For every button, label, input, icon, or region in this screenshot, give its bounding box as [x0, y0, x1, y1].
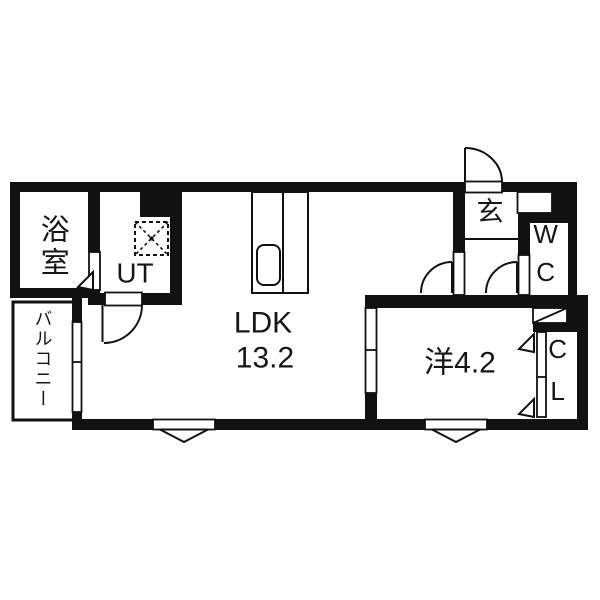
wall-left — [10, 182, 20, 298]
ut-door-arc — [104, 305, 142, 343]
wall-ut-ps — [140, 192, 181, 217]
wall-wc-right — [568, 182, 577, 297]
closet-triangle-top — [519, 334, 534, 352]
room-label-entrance: 玄 — [477, 198, 504, 226]
room-label-closet: CL — [543, 334, 570, 418]
floorplan-drawing — [0, 0, 600, 600]
balcony-sliding-window — [73, 322, 82, 412]
wall-balcony-bottom — [72, 412, 82, 430]
wall-right-lower — [577, 308, 588, 430]
kitchen-sink — [257, 245, 280, 285]
room-label-bathroom: 浴室 — [37, 214, 67, 280]
shoe-cabinet — [518, 192, 553, 213]
wall-balcony-top — [72, 296, 82, 322]
floorplan-canvas: 浴室 UT LDK 13.2 玄 WC 洋4.2 CL バルコニー — [0, 0, 600, 600]
wall-western-left-bottom — [365, 393, 377, 419]
bathroom-door-triangle — [78, 272, 93, 290]
wall-genkan-left — [453, 182, 465, 252]
room-label-ldk: LDK — [234, 307, 292, 339]
entrance-door-opening — [465, 182, 502, 193]
room-size-ldk: 13.2 — [236, 342, 294, 374]
wall-bottom — [72, 419, 588, 430]
kitchen-unit — [252, 192, 308, 293]
ut-door-opening — [105, 293, 142, 306]
hall-door-opening — [454, 252, 465, 295]
hall-door-arc — [421, 262, 452, 293]
window-triangle-right — [432, 430, 480, 443]
bottom-window-right — [425, 420, 487, 430]
entrance-door-arc — [465, 148, 502, 182]
wall-mid-band — [365, 295, 588, 308]
room-label-toilet: WC — [531, 219, 558, 295]
room-label-balcony: バルコニー — [33, 309, 52, 409]
window-triangle-left — [160, 430, 208, 443]
washer-pan-symbol — [135, 222, 168, 255]
closet-triangle-bottom — [519, 399, 534, 417]
room-label-western-room: 洋4.2 — [424, 347, 496, 379]
wc-door-opening — [519, 255, 530, 295]
room-label-utility: UT — [116, 258, 153, 287]
bottom-window-left — [153, 420, 215, 430]
wc-door-arc — [486, 262, 517, 293]
wall-bath-right-top — [88, 182, 100, 252]
